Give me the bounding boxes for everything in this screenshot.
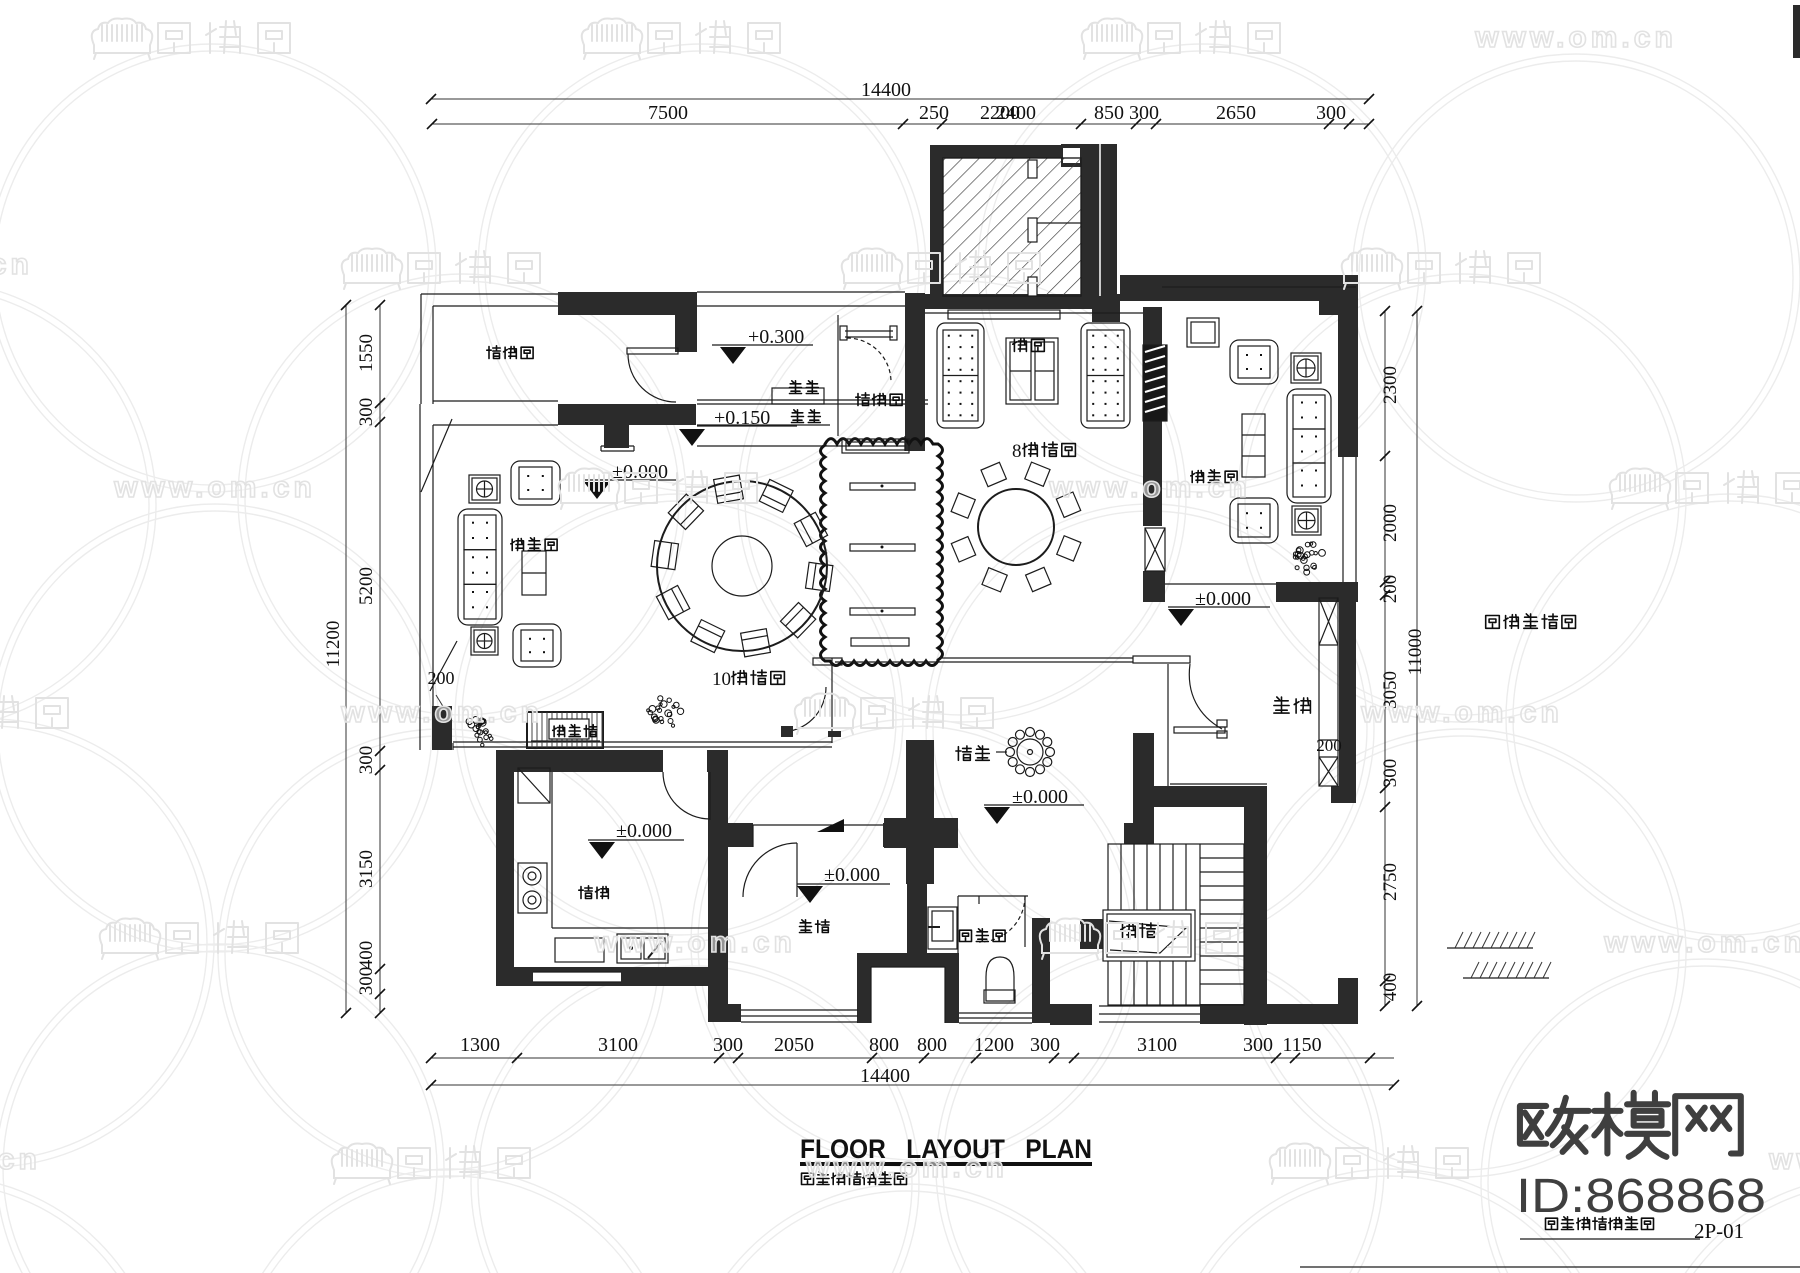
svg-text:200: 200 bbox=[1380, 575, 1401, 604]
svg-text:3100: 3100 bbox=[598, 1034, 638, 1056]
svg-text:300: 300 bbox=[1380, 759, 1401, 788]
svg-text:2650: 2650 bbox=[1216, 102, 1256, 124]
svg-text:±0.000: ±0.000 bbox=[616, 820, 672, 842]
svg-text:±0.000: ±0.000 bbox=[1195, 588, 1251, 610]
svg-text:1550: 1550 bbox=[356, 334, 377, 372]
svg-text:250: 250 bbox=[919, 102, 949, 124]
svg-text:8: 8 bbox=[1012, 441, 1022, 462]
svg-text:400: 400 bbox=[356, 941, 377, 970]
svg-text:400: 400 bbox=[1380, 973, 1401, 1002]
svg-text:800: 800 bbox=[917, 1034, 947, 1056]
svg-text:300: 300 bbox=[356, 746, 377, 775]
svg-text:ID:868868: ID:868868 bbox=[1516, 1170, 1766, 1223]
svg-text:2000: 2000 bbox=[1380, 504, 1401, 542]
svg-text:www.om.cn: www.om.cn bbox=[1360, 696, 1563, 729]
svg-text:1150: 1150 bbox=[1282, 1034, 1321, 1056]
svg-text:www.om.cn: www.om.cn bbox=[1603, 926, 1800, 959]
svg-text:+0.300: +0.300 bbox=[748, 326, 804, 348]
svg-text:10: 10 bbox=[712, 669, 731, 690]
svg-text:2300: 2300 bbox=[1380, 366, 1401, 404]
svg-text:800: 800 bbox=[869, 1034, 899, 1056]
svg-text:300: 300 bbox=[1243, 1034, 1273, 1056]
svg-text:300: 300 bbox=[713, 1034, 743, 1056]
svg-text:www.om.cn: www.om.cn bbox=[340, 696, 543, 729]
svg-text:14400: 14400 bbox=[860, 1065, 910, 1087]
svg-text:300: 300 bbox=[1030, 1034, 1060, 1056]
svg-text:300: 300 bbox=[356, 967, 377, 996]
svg-text:2750: 2750 bbox=[1380, 863, 1401, 901]
svg-text:200: 200 bbox=[428, 668, 455, 688]
svg-text:850: 850 bbox=[1094, 102, 1124, 124]
svg-text:1300: 1300 bbox=[460, 1034, 500, 1056]
svg-text:200: 200 bbox=[1316, 736, 1342, 755]
svg-text:2P-01: 2P-01 bbox=[1694, 1219, 1744, 1243]
svg-text:www.om.cn: www.om.cn bbox=[1048, 471, 1251, 504]
svg-text:11200: 11200 bbox=[323, 621, 344, 668]
svg-text:2050: 2050 bbox=[774, 1034, 814, 1056]
svg-text:±0.000: ±0.000 bbox=[1012, 786, 1068, 808]
svg-text:www.om.cn: www.om.cn bbox=[0, 1143, 41, 1176]
svg-text:5200: 5200 bbox=[356, 567, 377, 605]
svg-text:1200: 1200 bbox=[974, 1034, 1014, 1056]
svg-text:www.om.cn: www.om.cn bbox=[1768, 1143, 1800, 1176]
svg-text:www.om.cn: www.om.cn bbox=[113, 471, 316, 504]
svg-text:www.om.cn: www.om.cn bbox=[0, 248, 33, 281]
svg-text:14400: 14400 bbox=[861, 79, 911, 101]
svg-text:+0.150: +0.150 bbox=[714, 407, 770, 429]
svg-text:300: 300 bbox=[356, 398, 377, 427]
svg-text:11000: 11000 bbox=[1405, 629, 1426, 676]
svg-text:300: 300 bbox=[1129, 102, 1159, 124]
svg-text:300: 300 bbox=[1316, 102, 1346, 124]
svg-text:3150: 3150 bbox=[356, 850, 377, 888]
svg-text:www.om.cn: www.om.cn bbox=[805, 1151, 1008, 1184]
svg-text:7500: 7500 bbox=[648, 102, 688, 124]
svg-text:www.om.cn: www.om.cn bbox=[593, 926, 796, 959]
svg-text:www.om.cn: www.om.cn bbox=[1474, 21, 1677, 54]
svg-text:±0.000: ±0.000 bbox=[824, 864, 880, 886]
svg-text:2400: 2400 bbox=[996, 102, 1036, 124]
svg-text:3100: 3100 bbox=[1137, 1034, 1177, 1056]
